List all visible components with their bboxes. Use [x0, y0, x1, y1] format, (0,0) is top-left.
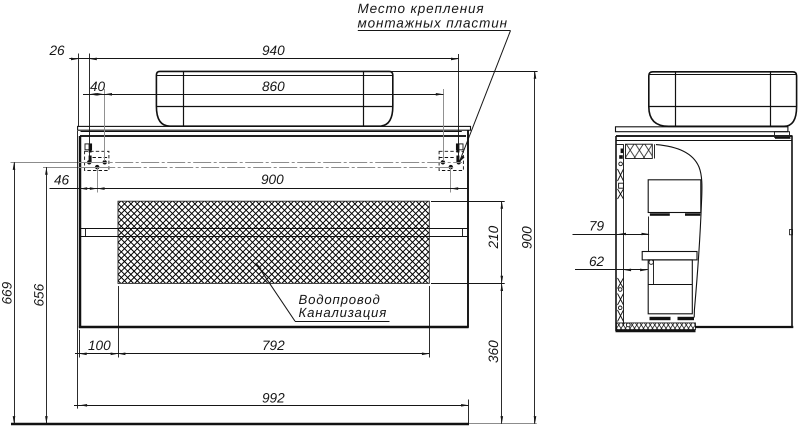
svg-text:360: 360 — [486, 340, 501, 363]
svg-text:860: 860 — [262, 79, 285, 94]
svg-text:669: 669 — [0, 281, 15, 304]
svg-text:992: 992 — [262, 391, 285, 406]
svg-text:900: 900 — [520, 226, 535, 249]
svg-text:Место крепления: Место крепления — [358, 1, 485, 16]
svg-text:26: 26 — [49, 43, 66, 58]
svg-text:Канализация: Канализация — [299, 305, 388, 320]
svg-text:62: 62 — [589, 254, 605, 269]
svg-text:900: 900 — [261, 172, 284, 187]
svg-text:монтажных пластин: монтажных пластин — [358, 15, 508, 30]
svg-text:79: 79 — [589, 219, 605, 234]
svg-text:46: 46 — [54, 173, 70, 188]
svg-text:210: 210 — [486, 225, 501, 249]
svg-text:940: 940 — [262, 43, 285, 58]
svg-text:792: 792 — [262, 338, 285, 353]
svg-text:656: 656 — [32, 283, 47, 306]
svg-text:100: 100 — [88, 338, 111, 353]
svg-text:40: 40 — [90, 79, 106, 94]
